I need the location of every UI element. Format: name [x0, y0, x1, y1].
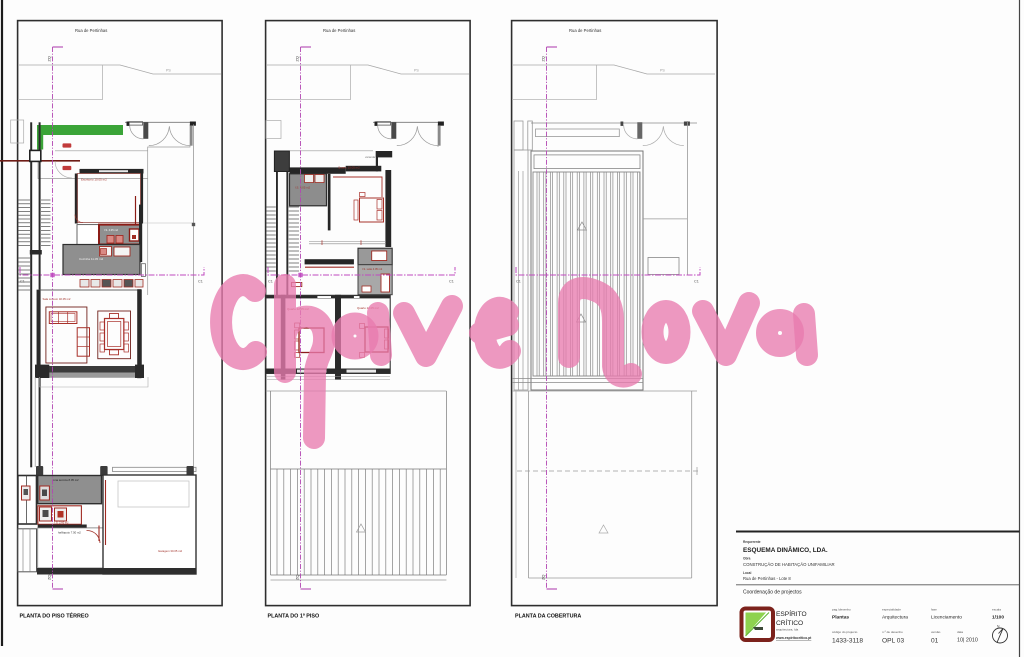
svg-text:escala: escala: [992, 608, 1001, 612]
svg-text:ESQUEMA DINÂMICO, LDA.: ESQUEMA DINÂMICO, LDA.: [743, 545, 828, 554]
svg-text:hall/apoio 7.50 m2: hall/apoio 7.50 m2: [58, 531, 81, 535]
svg-text:fase: fase: [931, 608, 937, 612]
svg-text:I.S. 4.05 m2: I.S. 4.05 m2: [104, 228, 119, 232]
svg-text:PS: PS: [166, 69, 171, 73]
svg-text:I.S. 6.05 m2: I.S. 6.05 m2: [295, 186, 311, 190]
svg-text:ZQ: ZQ: [46, 56, 51, 62]
svg-text:Local: Local: [743, 571, 751, 575]
svg-text:ZQ: ZQ: [46, 574, 51, 580]
svg-text:C1: C1: [449, 280, 454, 284]
svg-text:Arquitectura: Arquitectura: [882, 615, 908, 621]
svg-text:C1: C1: [268, 280, 273, 284]
svg-text:PS: PS: [660, 69, 665, 73]
svg-text:CONSTRUÇÃO DE HABITAÇÃO UNIFAM: CONSTRUÇÃO DE HABITAÇÃO UNIFAMILIAR: [743, 562, 835, 567]
svg-text:arquitectura, lda: arquitectura, lda: [776, 628, 798, 632]
svg-text:01: 01: [931, 638, 939, 645]
svg-text:Rua de Pertinhas: Rua de Pertinhas: [323, 28, 355, 33]
svg-text:Requerente: Requerente: [743, 540, 761, 544]
svg-text:Rua de Pertinhas - Lote 8: Rua de Pertinhas - Lote 8: [743, 576, 791, 581]
svg-text:especialidade: especialidade: [882, 608, 901, 612]
svg-text:versão: versão: [931, 630, 941, 634]
svg-text:PLANTA DA COBERTURA: PLANTA DA COBERTURA: [515, 614, 581, 620]
svg-text:data: data: [957, 630, 963, 634]
svg-text:Quarto 15.05 m2: Quarto 15.05 m2: [338, 166, 360, 170]
svg-text:pag./desenho: pag./desenho: [832, 608, 851, 612]
svg-text:varanda: varanda: [365, 155, 376, 159]
svg-text:n.º de desenho: n.º de desenho: [882, 630, 903, 634]
svg-text:ZQ: ZQ: [540, 574, 545, 580]
svg-text:zona tecnica 8.05 m2: zona tecnica 8.05 m2: [52, 478, 79, 482]
svg-text:Obra: Obra: [743, 557, 751, 561]
svg-text:ZQ: ZQ: [294, 56, 299, 62]
svg-text:PS: PS: [414, 69, 419, 73]
svg-text:1/100: 1/100: [992, 615, 1004, 621]
svg-text:C1: C1: [516, 280, 521, 284]
svg-text:Escritorio 10.05 m2: Escritorio 10.05 m2: [81, 178, 107, 182]
svg-text:C1: C1: [198, 280, 203, 284]
svg-text:Sala comum 32.05 m2: Sala comum 32.05 m2: [43, 297, 71, 301]
svg-text:www.espiritocritico.pt: www.espiritocritico.pt: [775, 636, 812, 640]
svg-text:PLANTA DO 1º PISO: PLANTA DO 1º PISO: [268, 614, 320, 620]
svg-text:Licenciamento: Licenciamento: [931, 615, 962, 621]
svg-text:código do projecto: código do projecto: [832, 630, 858, 634]
svg-text:OPL 03: OPL 03: [882, 638, 904, 645]
svg-text:Plantas: Plantas: [832, 615, 849, 621]
svg-text:ZQ: ZQ: [540, 56, 545, 62]
svg-text:Coordenação de projectos: Coordenação de projectos: [743, 590, 802, 596]
svg-text:10| 2010: 10| 2010: [957, 638, 978, 644]
svg-text:Cozinha 11.05 m2: Cozinha 11.05 m2: [79, 257, 103, 261]
svg-text:C1: C1: [20, 280, 25, 284]
svg-text:C1: C1: [694, 280, 699, 284]
svg-text:PLANTA DO PISO TÉRREO: PLANTA DO PISO TÉRREO: [20, 612, 89, 620]
svg-text:Rua de Pertinhas: Rua de Pertinhas: [75, 28, 107, 33]
svg-text:1433-3118: 1433-3118: [832, 638, 863, 645]
svg-text:Rua de Pertinhas: Rua de Pertinhas: [569, 28, 601, 33]
svg-text:Garagem 30.05 m2: Garagem 30.05 m2: [158, 549, 183, 553]
svg-text:I.S. 2.60 m2: I.S. 2.60 m2: [55, 521, 70, 525]
svg-text:ESPÍRITO: ESPÍRITO: [776, 609, 807, 618]
svg-text:ZQ: ZQ: [294, 574, 299, 580]
svg-text:CRÍTICO: CRÍTICO: [776, 618, 803, 627]
svg-text:I.S. suite 4.05 m2: I.S. suite 4.05 m2: [362, 267, 383, 271]
